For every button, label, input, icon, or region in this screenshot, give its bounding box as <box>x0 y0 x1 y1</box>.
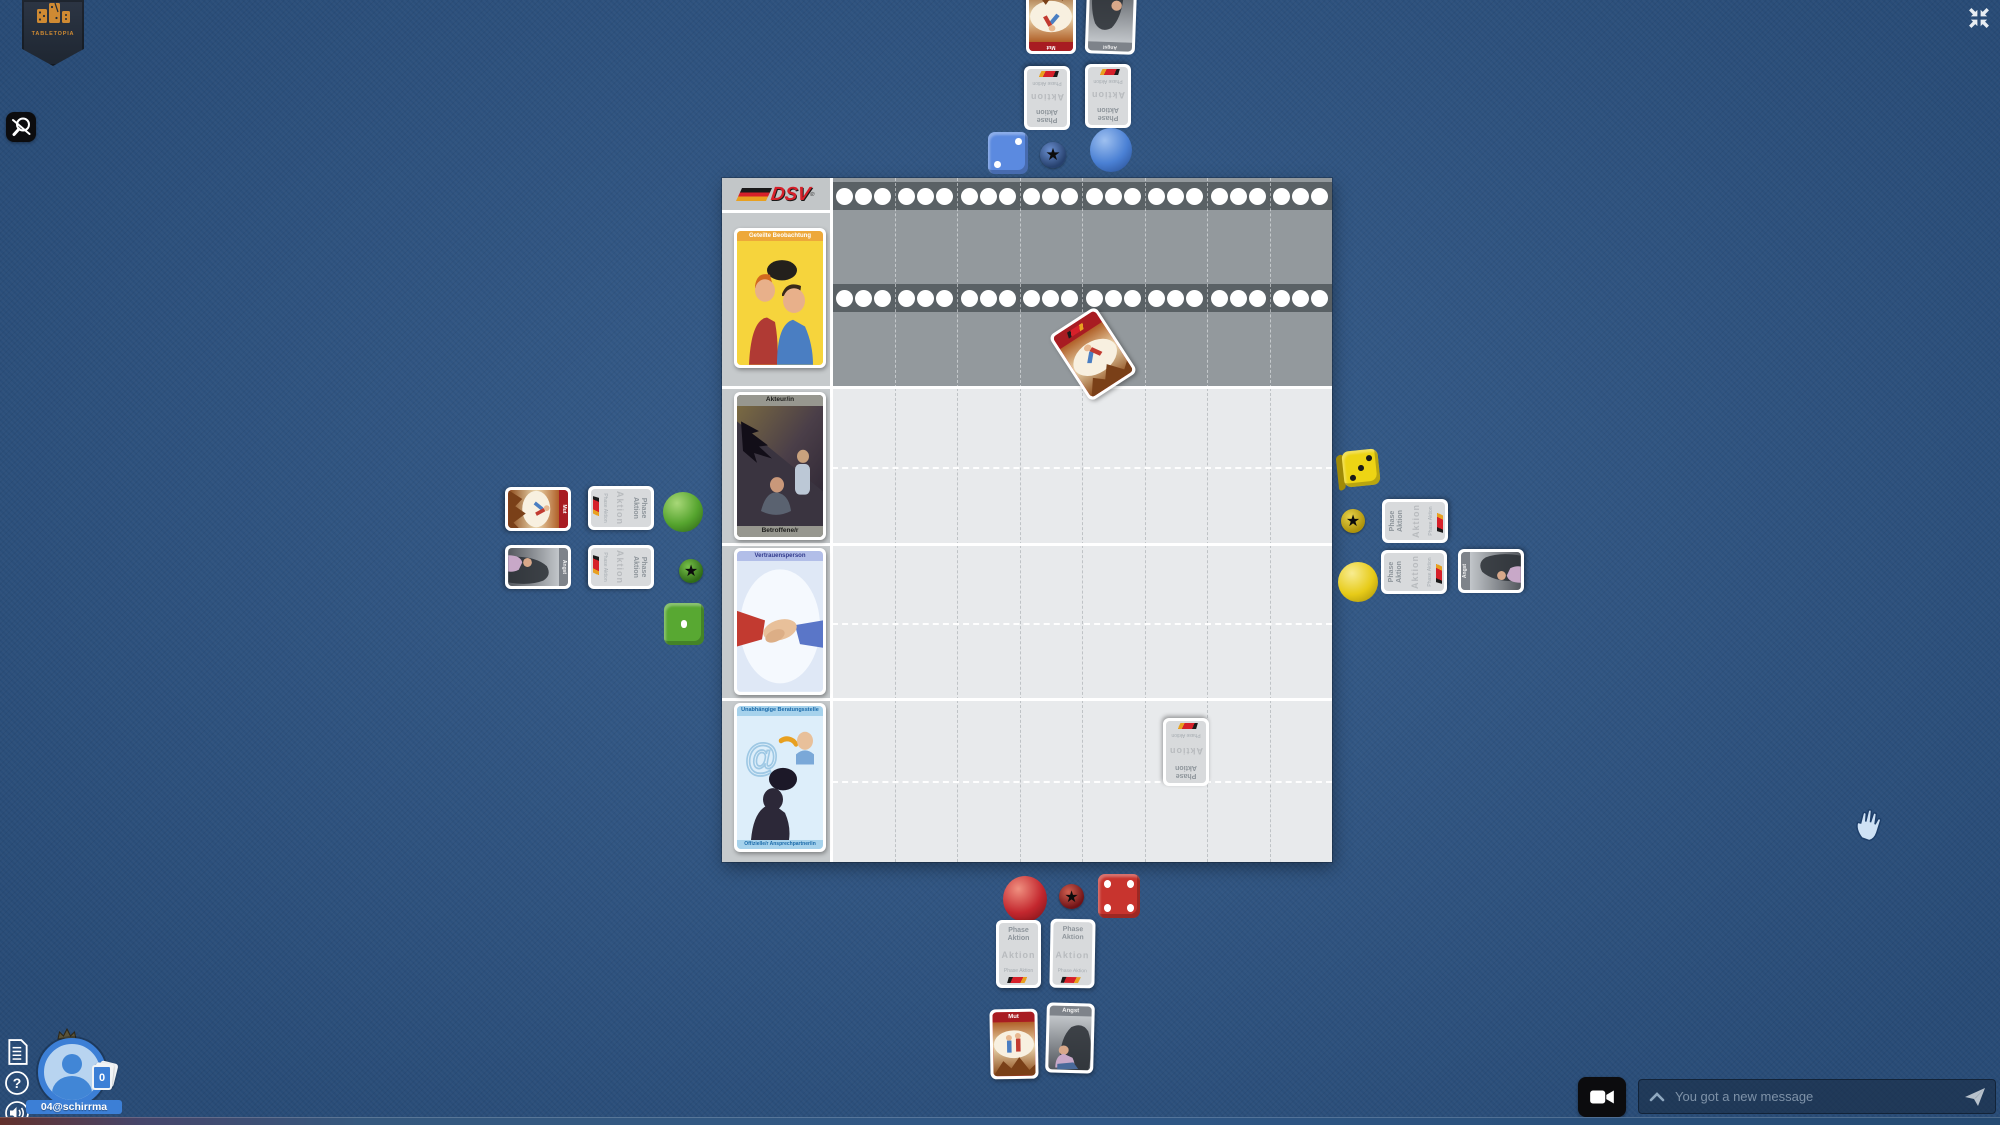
grid-line <box>1207 178 1208 388</box>
shadow-art <box>508 548 559 586</box>
grid-line <box>895 388 896 545</box>
dsv-mini-logo <box>593 555 599 579</box>
card-back-watermark: Aktion <box>1169 738 1203 764</box>
card-title: Offizielle/r Ansprechpartner/in <box>737 840 823 849</box>
green-played-card-angst[interactable]: Angst <box>505 545 571 589</box>
card-back-watermark: Aktion <box>1404 504 1428 538</box>
track-dot-group <box>1270 182 1333 210</box>
card-back-subtitle: Phase Aktion <box>1004 968 1033 974</box>
game-board[interactable]: DSV ® Geteilte Beobachtung <box>722 178 1332 862</box>
card-back-title: Phase Aktion <box>1388 557 1403 587</box>
green-facedown-card[interactable]: Phase Aktion Aktion Phase Aktion <box>588 486 654 530</box>
card-back-subtitle: Phase Aktion <box>1171 732 1200 738</box>
dsv-mini-logo <box>1060 977 1084 983</box>
card-back-watermark: Aktion <box>1055 941 1089 968</box>
card-title: Geteilte Beobachtung <box>737 231 823 241</box>
board-divider <box>722 698 1332 701</box>
card-back-title: Phase Aktion <box>1093 106 1123 121</box>
actor-art <box>737 406 823 526</box>
red-die[interactable] <box>1098 874 1140 918</box>
card-vertrauensperson[interactable]: Vertrauensperson <box>734 548 826 695</box>
yellow-played-card-angst[interactable]: Angst <box>1458 549 1524 593</box>
fall-art <box>1029 0 1073 42</box>
card-back-title: Phase Aktion <box>1171 764 1201 779</box>
shadow-art <box>1088 0 1134 43</box>
grid-line <box>1145 178 1146 388</box>
track-space <box>1023 188 1040 205</box>
card-back-watermark: Aktion <box>608 550 632 584</box>
board-row-counsel <box>832 700 1332 862</box>
track-space <box>1124 188 1141 205</box>
track-space <box>874 290 891 307</box>
track-dot-group <box>832 284 895 312</box>
die-pip <box>1127 880 1134 887</box>
track-dot-group <box>1145 182 1208 210</box>
chat-bar[interactable] <box>1638 1079 1996 1114</box>
shadow-art <box>1470 552 1521 590</box>
track-space <box>980 290 997 307</box>
track-space <box>1249 290 1266 307</box>
track-space <box>1061 290 1078 307</box>
red-facedown-card[interactable]: Phase Aktion Aktion Phase Aktion <box>1049 919 1095 989</box>
card-back-watermark: Aktion <box>1030 86 1064 108</box>
grid-line <box>1145 388 1146 545</box>
track-space <box>1042 290 1059 307</box>
star-icon: ★ <box>684 561 698 581</box>
grid-line <box>1207 388 1208 545</box>
track-space <box>836 188 853 205</box>
fall-art <box>993 1022 1036 1076</box>
card-back-title: Phase Aktion <box>1058 926 1088 942</box>
grid-line <box>1020 700 1021 862</box>
track-space <box>1167 290 1184 307</box>
track-space <box>1105 188 1122 205</box>
track-space <box>1061 188 1078 205</box>
track-space <box>1311 290 1328 307</box>
blue-facedown-card[interactable]: Phase Aktion Aktion Phase Aktion <box>1085 64 1131 128</box>
observation-art <box>737 241 823 365</box>
track-space <box>1186 188 1203 205</box>
die-pip <box>1104 880 1111 887</box>
handshake-art <box>737 561 823 692</box>
question-icon: ? <box>4 1070 30 1096</box>
card-back-watermark: Aktion <box>1091 84 1125 106</box>
card-back-watermark: Aktion <box>1403 555 1427 589</box>
remote-hand-cursor <box>1850 806 1888 844</box>
die-pip <box>994 161 1001 168</box>
track-space <box>898 290 915 307</box>
grid-line <box>1082 700 1083 862</box>
grid-line <box>1020 388 1021 545</box>
grid-line <box>1020 178 1021 388</box>
track-space <box>1273 290 1290 307</box>
blue-played-card-mut[interactable]: Mut <box>1026 0 1076 54</box>
document-icon <box>7 1039 29 1065</box>
card-back-watermark: Aktion <box>1002 942 1036 968</box>
green-played-card-mut[interactable]: Mut <box>505 487 571 531</box>
dsv-mini-logo <box>593 496 599 520</box>
green-die[interactable] <box>664 603 704 645</box>
player-avatar[interactable]: 04@schirrma 0 <box>36 1028 132 1120</box>
track-dot-group <box>957 284 1020 312</box>
counsel-art: @ <box>737 716 823 840</box>
track-space <box>961 290 978 307</box>
grid-line <box>1270 178 1271 388</box>
grid-line <box>1207 545 1208 700</box>
track-space <box>1292 188 1309 205</box>
track-space <box>855 188 872 205</box>
table-surface[interactable]: TABLETOPIA <box>0 0 2000 1125</box>
star-icon: ★ <box>1346 511 1360 531</box>
grid-line <box>957 700 958 862</box>
dsv-mini-logo <box>1096 69 1120 75</box>
track-space <box>1042 188 1059 205</box>
card-title: Unabhängige Beratungsstelle <box>737 706 823 716</box>
card-title: Angst <box>1088 41 1132 52</box>
grid-line <box>895 178 896 388</box>
dsv-mini-logo <box>1035 71 1059 77</box>
magnifier-slash-icon <box>8 114 34 140</box>
track-space <box>1105 290 1122 307</box>
die-pip <box>681 620 688 627</box>
tabletopia-wordmark: TABLETOPIA <box>32 31 75 37</box>
star-icon: ★ <box>1064 887 1078 907</box>
track-space <box>1292 290 1309 307</box>
track-space <box>1211 188 1228 205</box>
track-dot-group <box>895 182 958 210</box>
green-pawn[interactable] <box>663 492 703 532</box>
card-back-title: Phase Aktion <box>632 493 647 523</box>
magnify-off-button[interactable] <box>6 112 36 142</box>
track-dot-group <box>832 182 895 210</box>
chevron-up-icon[interactable] <box>1647 1087 1667 1107</box>
card-back-subtitle: Phase Aktion <box>602 493 608 522</box>
tabletopia-badge[interactable]: TABLETOPIA <box>22 0 84 66</box>
grid-line <box>1082 545 1083 700</box>
grid-line <box>1082 388 1083 545</box>
track-dot-group <box>1020 284 1083 312</box>
send-icon[interactable] <box>1963 1085 1987 1109</box>
track-space <box>1148 290 1165 307</box>
exit-fullscreen-button[interactable] <box>1966 5 1992 31</box>
yellow-star-token[interactable]: ★ <box>1341 509 1365 533</box>
hand-card-mut[interactable]: Mut <box>989 1009 1038 1080</box>
yellow-facedown-card[interactable]: Phase Aktion Aktion Phase Aktion <box>1382 499 1448 543</box>
track-space <box>874 188 891 205</box>
yellow-die[interactable] <box>1341 448 1381 488</box>
track-space <box>1230 188 1247 205</box>
card-title: Angst <box>1461 552 1470 590</box>
board-divider <box>722 543 1332 546</box>
registered-mark: ® <box>810 191 815 197</box>
table-edge <box>0 1117 2000 1125</box>
card-beratungsstelle[interactable]: Unabhängige Beratungsstelle @ Offizielle… <box>734 703 826 852</box>
board-row-actor <box>832 388 1332 545</box>
grid-line <box>1020 545 1021 700</box>
track-space <box>1086 188 1103 205</box>
track-dot-group <box>1082 182 1145 210</box>
green-star-token[interactable]: ★ <box>679 559 703 583</box>
grid-line <box>895 700 896 862</box>
die-pip <box>1127 904 1134 911</box>
track-space <box>917 290 934 307</box>
card-back-subtitle: Phase Aktion <box>1058 968 1087 975</box>
video-camera-icon <box>1588 1085 1616 1109</box>
card-back-title: Phase Aktion <box>632 552 647 582</box>
track-space <box>1211 290 1228 307</box>
blue-star-token[interactable]: ★ <box>1040 142 1066 168</box>
red-pawn[interactable] <box>1003 876 1047 922</box>
track-space <box>1230 290 1247 307</box>
track-dot-group <box>895 284 958 312</box>
hand-card-angst[interactable]: Angst <box>1045 1002 1095 1073</box>
board-divider <box>722 210 832 213</box>
grid-line <box>1270 388 1271 545</box>
grid-line <box>1145 700 1146 862</box>
track-space <box>1311 188 1328 205</box>
track-space <box>1124 290 1141 307</box>
red-star-token[interactable]: ★ <box>1059 884 1084 909</box>
card-back-subtitle: Phase Aktion <box>1428 506 1434 535</box>
help-button[interactable]: ? <box>4 1070 30 1096</box>
card-back-title: Phase Aktion <box>1389 506 1404 536</box>
dsv-mini-logo <box>1437 509 1443 533</box>
grid-line <box>957 545 958 700</box>
die-pip <box>1104 904 1111 911</box>
die-pip <box>1358 465 1364 471</box>
track-dot-group <box>1270 284 1333 312</box>
card-back-subtitle: Phase Aktion <box>1032 80 1061 86</box>
track-dot-group <box>1207 284 1270 312</box>
blue-die[interactable] <box>988 132 1028 174</box>
track-space <box>917 188 934 205</box>
dsv-flag-stripes <box>736 188 772 201</box>
blue-played-card-angst[interactable]: Angst <box>1085 0 1138 55</box>
yellow-facedown-card[interactable]: Phase Aktion Aktion Phase Aktion <box>1381 550 1447 594</box>
username-label: 04@schirrma <box>26 1100 122 1114</box>
hand-icon <box>1850 806 1888 844</box>
yellow-pawn[interactable] <box>1338 562 1378 602</box>
card-title: Mut <box>559 490 568 528</box>
board-divider <box>722 386 1332 389</box>
track-dot-group <box>1145 284 1208 312</box>
track-space <box>999 188 1016 205</box>
facedown-card-on-board[interactable]: Phase Aktion Aktion Phase Aktion <box>1163 718 1209 786</box>
card-title: Vertrauensperson <box>737 551 823 561</box>
video-chat-button[interactable] <box>1578 1077 1626 1117</box>
tabletopia-logo-icon <box>33 0 73 30</box>
track-space <box>1148 188 1165 205</box>
card-title: Mut <box>1029 42 1073 51</box>
track-space <box>1249 188 1266 205</box>
card-geteilte-beobachtung[interactable]: Geteilte Beobachtung <box>734 228 826 368</box>
die-pip <box>1366 455 1372 461</box>
blue-facedown-card[interactable]: Phase Aktion Aktion Phase Aktion <box>1024 66 1070 130</box>
track-space <box>898 188 915 205</box>
red-facedown-card[interactable]: Phase Aktion Aktion Phase Aktion <box>996 920 1041 988</box>
dsv-logo: DSV ® <box>738 185 816 204</box>
grid-line <box>957 178 958 388</box>
track-space <box>1186 290 1203 307</box>
board-divider <box>830 178 833 862</box>
fall-art <box>508 490 559 528</box>
board-row-trust <box>832 545 1332 700</box>
hand-count: 0 <box>92 1065 112 1090</box>
track-dot-group <box>957 182 1020 210</box>
track-dot-group <box>1207 182 1270 210</box>
chat-input[interactable] <box>1673 1088 1957 1105</box>
card-title: Akteur/in <box>737 395 823 406</box>
card-title: Angst <box>559 548 568 586</box>
avatar-person-icon <box>62 1054 82 1074</box>
dsv-wordmark: DSV <box>770 185 812 204</box>
dsv-mini-logo <box>1007 977 1031 983</box>
card-back-title: Phase Aktion <box>1032 108 1062 123</box>
grid-line <box>1270 545 1271 700</box>
grid-line <box>1145 545 1146 700</box>
hand-count-badge[interactable]: 0 <box>92 1062 118 1092</box>
card-akteur-betroffene[interactable]: Akteur/in Betroffene/r <box>734 392 826 540</box>
die-pip <box>1015 138 1022 145</box>
dsv-mini-logo <box>1174 723 1198 729</box>
track-space <box>936 188 953 205</box>
card-title: Betroffene/r <box>737 526 823 537</box>
card-back-title: Phase Aktion <box>1004 927 1034 942</box>
card-back-subtitle: Phase Aktion <box>1427 557 1433 586</box>
svg-text:?: ? <box>13 1075 22 1091</box>
track-space <box>936 290 953 307</box>
notes-button[interactable] <box>6 1038 30 1066</box>
track-space <box>980 188 997 205</box>
track-space <box>1167 188 1184 205</box>
grid-line <box>957 388 958 545</box>
green-facedown-card[interactable]: Phase Aktion Aktion Phase Aktion <box>588 545 654 589</box>
track-space <box>855 290 872 307</box>
card-title: Mut <box>992 1012 1034 1023</box>
dsv-mini-logo <box>1436 560 1442 584</box>
shadow-art <box>1048 1016 1091 1071</box>
collapse-arrows-icon <box>1966 5 1992 31</box>
die-pip <box>1350 475 1356 481</box>
card-back-subtitle: Phase Aktion <box>1093 78 1122 84</box>
track-dot-group <box>1020 182 1083 210</box>
blue-pawn[interactable] <box>1090 128 1132 172</box>
card-back-watermark: Aktion <box>608 491 632 525</box>
grid-line <box>1270 700 1271 862</box>
track-space <box>999 290 1016 307</box>
track-space <box>961 188 978 205</box>
star-icon: ★ <box>1045 145 1060 165</box>
track-space <box>1273 188 1290 205</box>
board-logo-cell: DSV ® <box>722 178 832 210</box>
track-space <box>836 290 853 307</box>
track-space <box>1023 290 1040 307</box>
grid-line <box>895 545 896 700</box>
track-space <box>1086 290 1103 307</box>
card-back-subtitle: Phase Aktion <box>602 552 608 581</box>
